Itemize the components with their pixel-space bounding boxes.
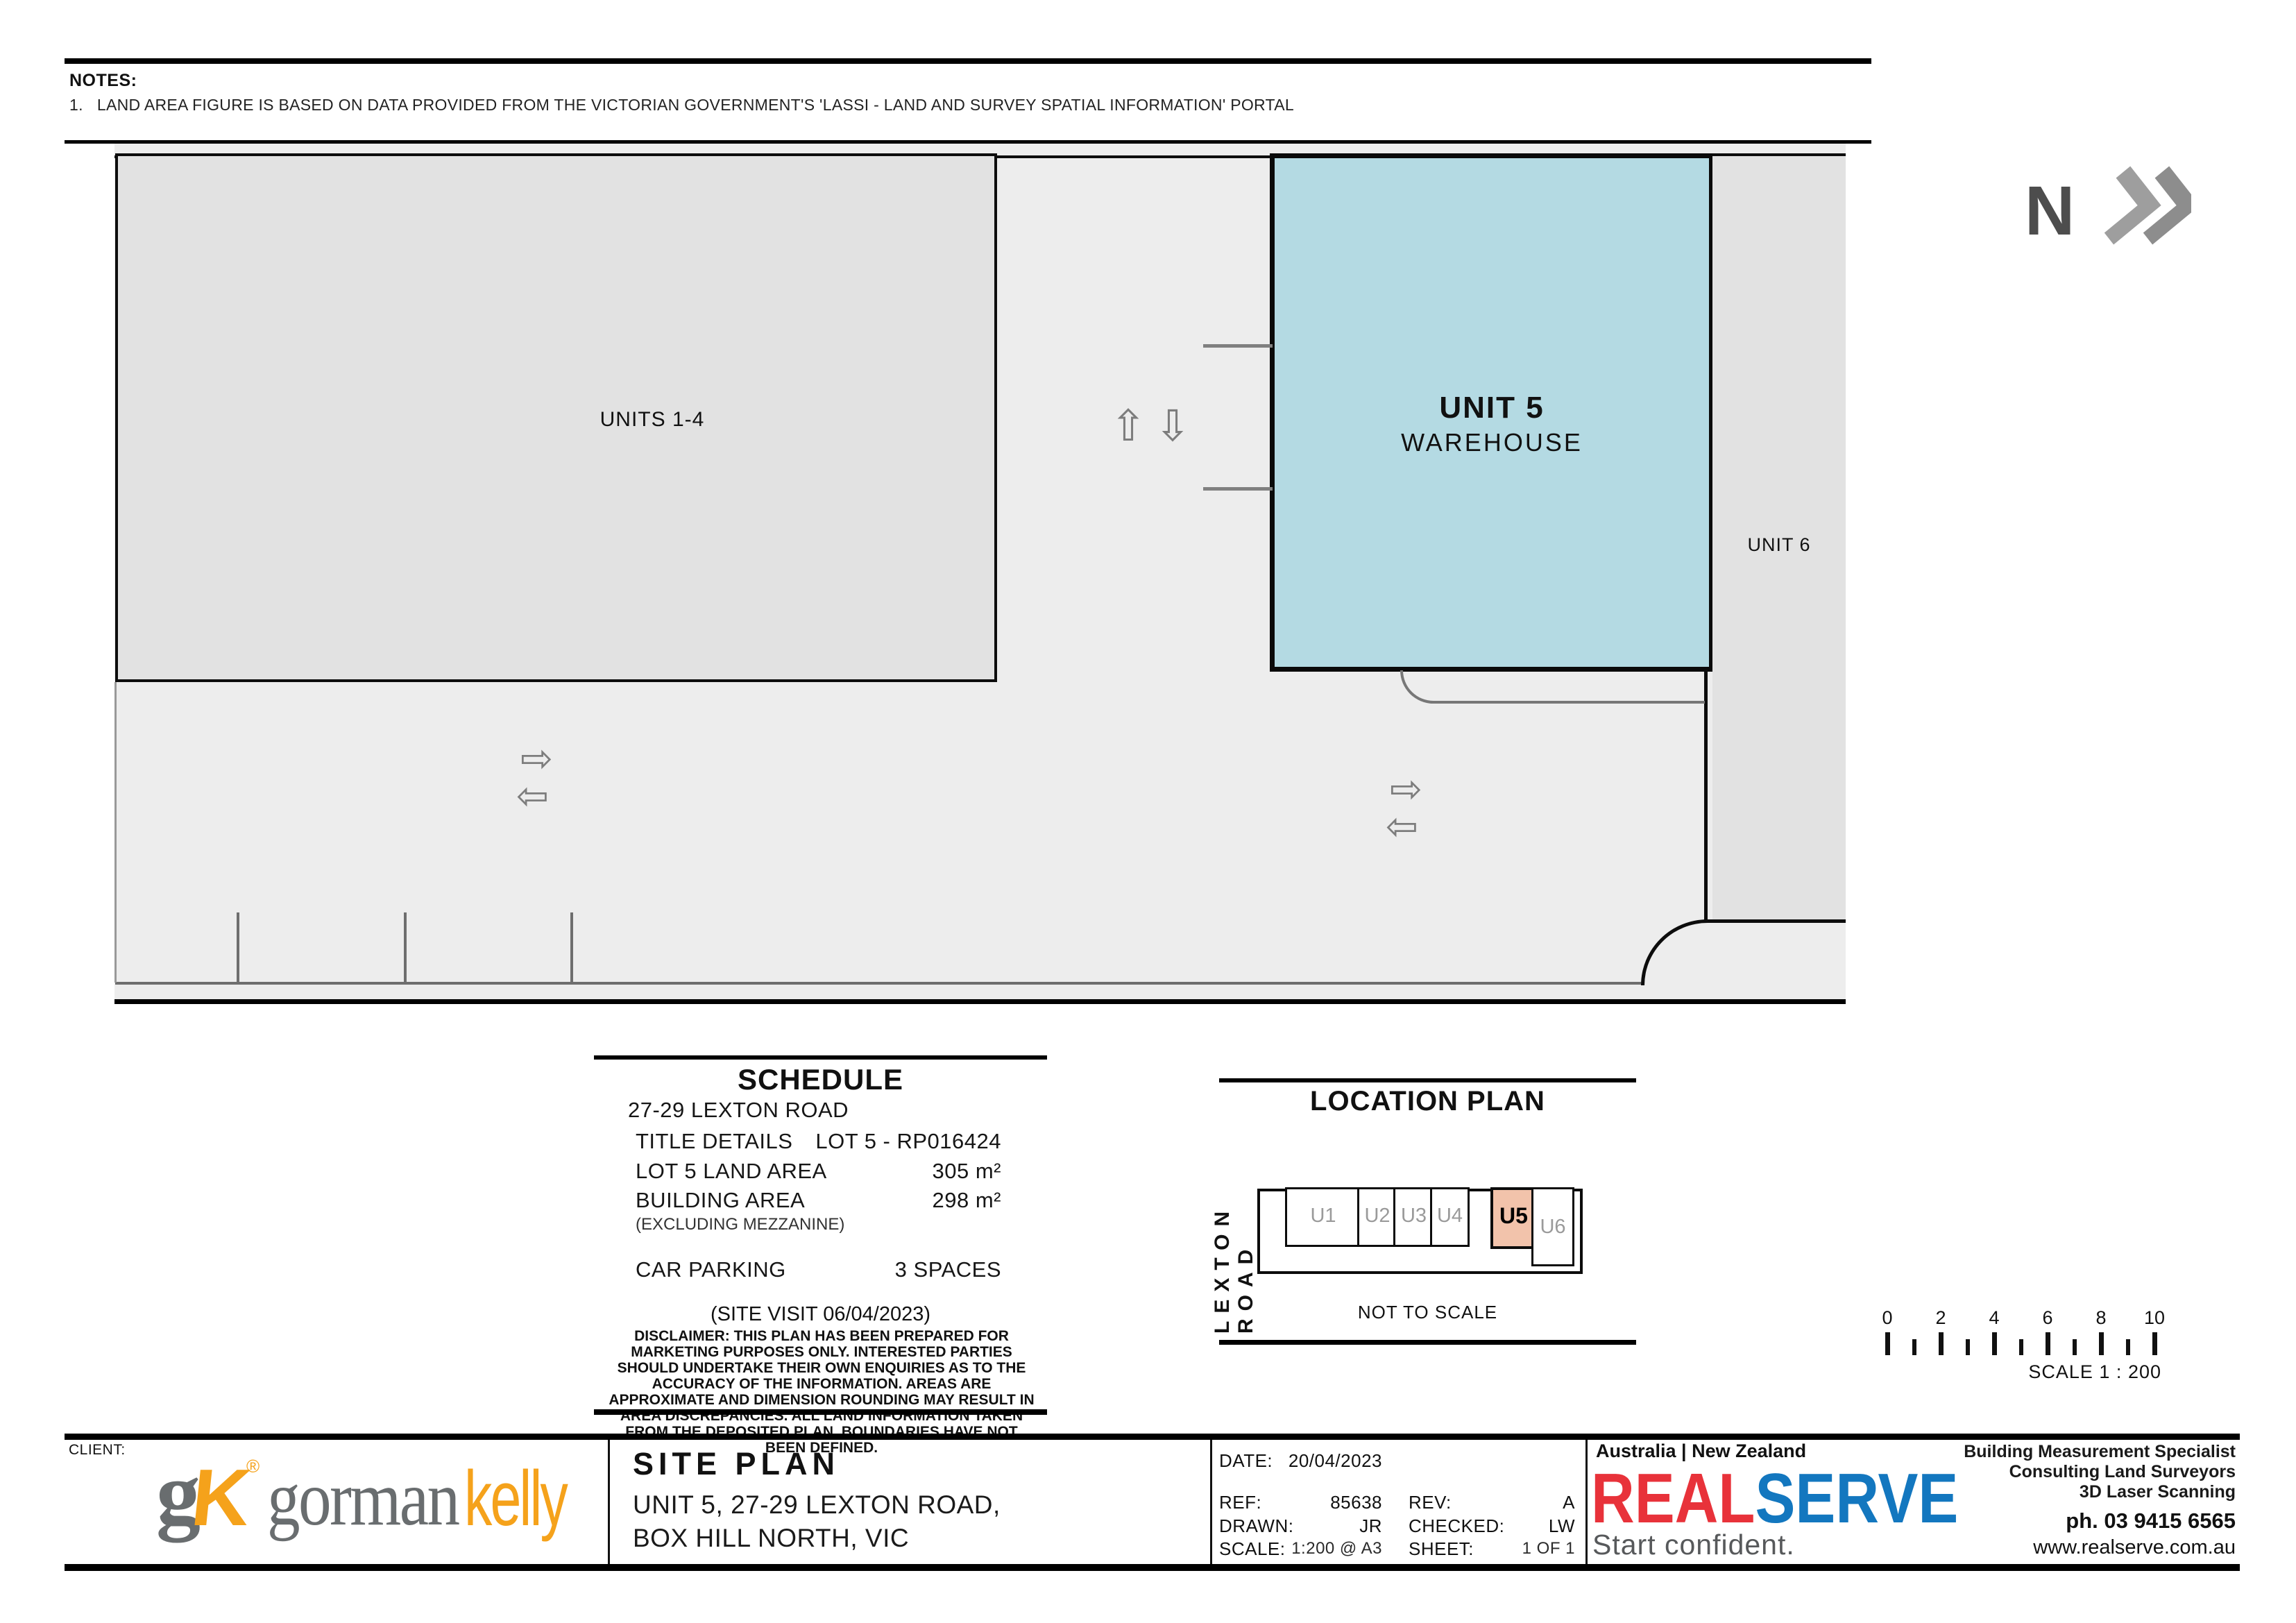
ref-value: 85638 bbox=[1249, 1492, 1382, 1513]
two-way-traffic-up-down-icon: ⇧⇩ bbox=[1110, 405, 1199, 448]
title-block-divider bbox=[608, 1440, 610, 1564]
unit-box-label: U1 bbox=[1287, 1205, 1359, 1227]
parking-bay-divider bbox=[570, 912, 573, 983]
realserve-region-label: Australia | New Zealand bbox=[1596, 1441, 1806, 1462]
scale-tick bbox=[1885, 1332, 1890, 1355]
title-block-bottom-border bbox=[65, 1564, 2240, 1571]
realserve-service: Consulting Land Surveyors bbox=[1943, 1462, 2236, 1482]
parking-bay-divider bbox=[237, 912, 239, 983]
scale-number: 0 bbox=[1873, 1307, 1901, 1329]
top-rule bbox=[65, 58, 1871, 64]
drawing-title: SITE PLAN bbox=[633, 1446, 840, 1482]
registered-trademark-icon: ® bbox=[246, 1456, 260, 1477]
schedule-site-visit-note: (SITE VISIT 06/04/2023) bbox=[594, 1303, 1047, 1326]
realserve-website: www.realserve.com.au bbox=[1943, 1536, 2236, 1559]
realserve-service: Building Measurement Specialist bbox=[1943, 1442, 2236, 1462]
date-value: 20/04/2023 bbox=[1249, 1450, 1382, 1472]
realserve-tagline: Start confident. bbox=[1592, 1529, 1795, 1561]
realserve-logo: REALSERVE bbox=[1591, 1464, 1958, 1534]
unit-box-label: U4 bbox=[1432, 1205, 1468, 1227]
notes-item: 1. LAND AREA FIGURE IS BASED ON DATA PRO… bbox=[69, 96, 1294, 114]
unit-5-canopy-line bbox=[1431, 701, 1705, 704]
scale-tick bbox=[2126, 1339, 2130, 1355]
realserve-phone: ph. 03 9415 6565 bbox=[1943, 1509, 2236, 1533]
down-arrow-icon: ⇩ bbox=[1155, 400, 1199, 451]
unit-6-label: UNIT 6 bbox=[1712, 534, 1846, 556]
location-unit-u5-highlighted: U5 bbox=[1490, 1187, 1537, 1249]
parking-bay-divider bbox=[404, 912, 407, 983]
location-plan-title: LOCATION PLAN bbox=[1219, 1086, 1636, 1117]
schedule-building-note: (EXCLUDING MEZZANINE) bbox=[636, 1215, 844, 1234]
scale-number: 6 bbox=[2034, 1307, 2061, 1329]
location-unit-u3: U3 bbox=[1393, 1187, 1434, 1247]
drawing-address-line2: BOX HILL NORTH, VIC bbox=[633, 1524, 909, 1553]
scale-tick bbox=[1966, 1339, 1970, 1355]
scale-ratio-label: SCALE 1 : 200 bbox=[1991, 1361, 2161, 1383]
realserve-service: 3D Laser Scanning bbox=[1943, 1482, 2236, 1502]
scale-tick bbox=[2099, 1332, 2104, 1355]
scale-tick bbox=[2046, 1332, 2050, 1355]
gk-monogram-k: K bbox=[188, 1457, 255, 1538]
scale-number: 4 bbox=[1980, 1307, 2008, 1329]
schedule-title: SCHEDULE bbox=[594, 1063, 1047, 1096]
site-south-boundary-line bbox=[114, 999, 1846, 1004]
not-to-scale-note: NOT TO SCALE bbox=[1219, 1302, 1636, 1323]
drawn-value: JR bbox=[1249, 1515, 1382, 1537]
right-arrow-icon: ⇨ bbox=[1390, 770, 1422, 809]
title-block-divider bbox=[1210, 1440, 1212, 1564]
north-arrow-icon: N bbox=[2025, 165, 2191, 248]
unit-box-label: U5 bbox=[1493, 1203, 1534, 1229]
scale-tick bbox=[1992, 1332, 1997, 1355]
unit-box-label: U3 bbox=[1395, 1205, 1432, 1227]
scale-number: 10 bbox=[2141, 1307, 2168, 1329]
location-unit-u6: U6 bbox=[1531, 1187, 1574, 1266]
parking-kerb-line bbox=[115, 982, 1641, 985]
title-block-divider bbox=[1585, 1440, 1588, 1564]
schedule-row-value: 305 m² bbox=[722, 1159, 1028, 1184]
schedule-row-value: 3 SPACES bbox=[722, 1257, 1001, 1282]
location-unit-u4: U4 bbox=[1430, 1187, 1470, 1247]
scale-tick bbox=[2019, 1339, 2023, 1355]
schedule-bottom-rule bbox=[594, 1409, 1047, 1415]
left-arrow-icon: ⇦ bbox=[1386, 808, 1418, 847]
unit-5-type-label: WAREHOUSE bbox=[1270, 428, 1714, 457]
units-1-4-label: UNITS 1-4 bbox=[586, 408, 718, 432]
unit-5-label: UNIT 5 bbox=[1270, 391, 1714, 425]
scale-number: 2 bbox=[1927, 1307, 1955, 1329]
units-1-4-building bbox=[115, 153, 997, 682]
scale-tick bbox=[2152, 1332, 2157, 1355]
right-arrow-icon: ⇨ bbox=[520, 740, 553, 779]
unit-5-door-line bbox=[1203, 344, 1273, 348]
scale-number: 8 bbox=[2087, 1307, 2115, 1329]
scale-field-value: 1:200 @ A3 bbox=[1249, 1539, 1382, 1558]
realserve-logo-real: REAL bbox=[1591, 1460, 1755, 1538]
rev-value: A bbox=[1457, 1492, 1575, 1513]
scale-tick bbox=[1912, 1339, 1916, 1355]
scale-tick bbox=[2073, 1339, 2077, 1355]
drawing-address-line1: UNIT 5, 27-29 LEXTON ROAD, bbox=[633, 1490, 1001, 1520]
up-arrow-icon: ⇧ bbox=[1110, 400, 1155, 451]
gormankelly-logo: g K ® gorman kelly bbox=[156, 1454, 600, 1552]
location-unit-u1: U1 bbox=[1285, 1187, 1361, 1247]
gorman-wordmark: gorman bbox=[267, 1460, 459, 1538]
realserve-logo-serve: SERVE bbox=[1755, 1460, 1958, 1538]
location-plan-bottom-rule bbox=[1219, 1340, 1636, 1345]
unit-6-south-boundary-line bbox=[1706, 919, 1846, 923]
rev-label: REV: bbox=[1409, 1492, 1452, 1513]
site-west-boundary-line bbox=[114, 682, 117, 983]
notes-heading: NOTES: bbox=[69, 71, 137, 91]
location-plan-top-rule bbox=[1219, 1078, 1636, 1082]
schedule-top-rule bbox=[594, 1055, 1047, 1060]
schedule-address: 27-29 LEXTON ROAD bbox=[628, 1098, 849, 1123]
unit-6-west-boundary-line bbox=[1704, 670, 1708, 922]
kelly-wordmark: kelly bbox=[464, 1460, 566, 1538]
schedule-row-value: 298 m² bbox=[722, 1188, 1028, 1213]
unit-5-door-line bbox=[1203, 487, 1273, 491]
unit-box-label: U2 bbox=[1359, 1205, 1395, 1227]
location-unit-u2: U2 bbox=[1357, 1187, 1397, 1247]
client-heading: CLIENT: bbox=[69, 1442, 126, 1459]
schedule-row-value: LOT 5 - RP016424 bbox=[722, 1129, 1001, 1154]
scale-tick bbox=[1939, 1332, 1944, 1355]
checked-value: LW bbox=[1457, 1515, 1575, 1537]
site-plan-sheet: NOTES: 1. LAND AREA FIGURE IS BASED ON D… bbox=[0, 0, 2296, 1623]
unit-box-label: U6 bbox=[1533, 1216, 1572, 1239]
sheet-value: 1 OF 1 bbox=[1457, 1539, 1575, 1558]
left-arrow-icon: ⇦ bbox=[516, 777, 549, 816]
north-label: N bbox=[2025, 172, 2075, 248]
title-block-top-border bbox=[65, 1434, 2240, 1440]
